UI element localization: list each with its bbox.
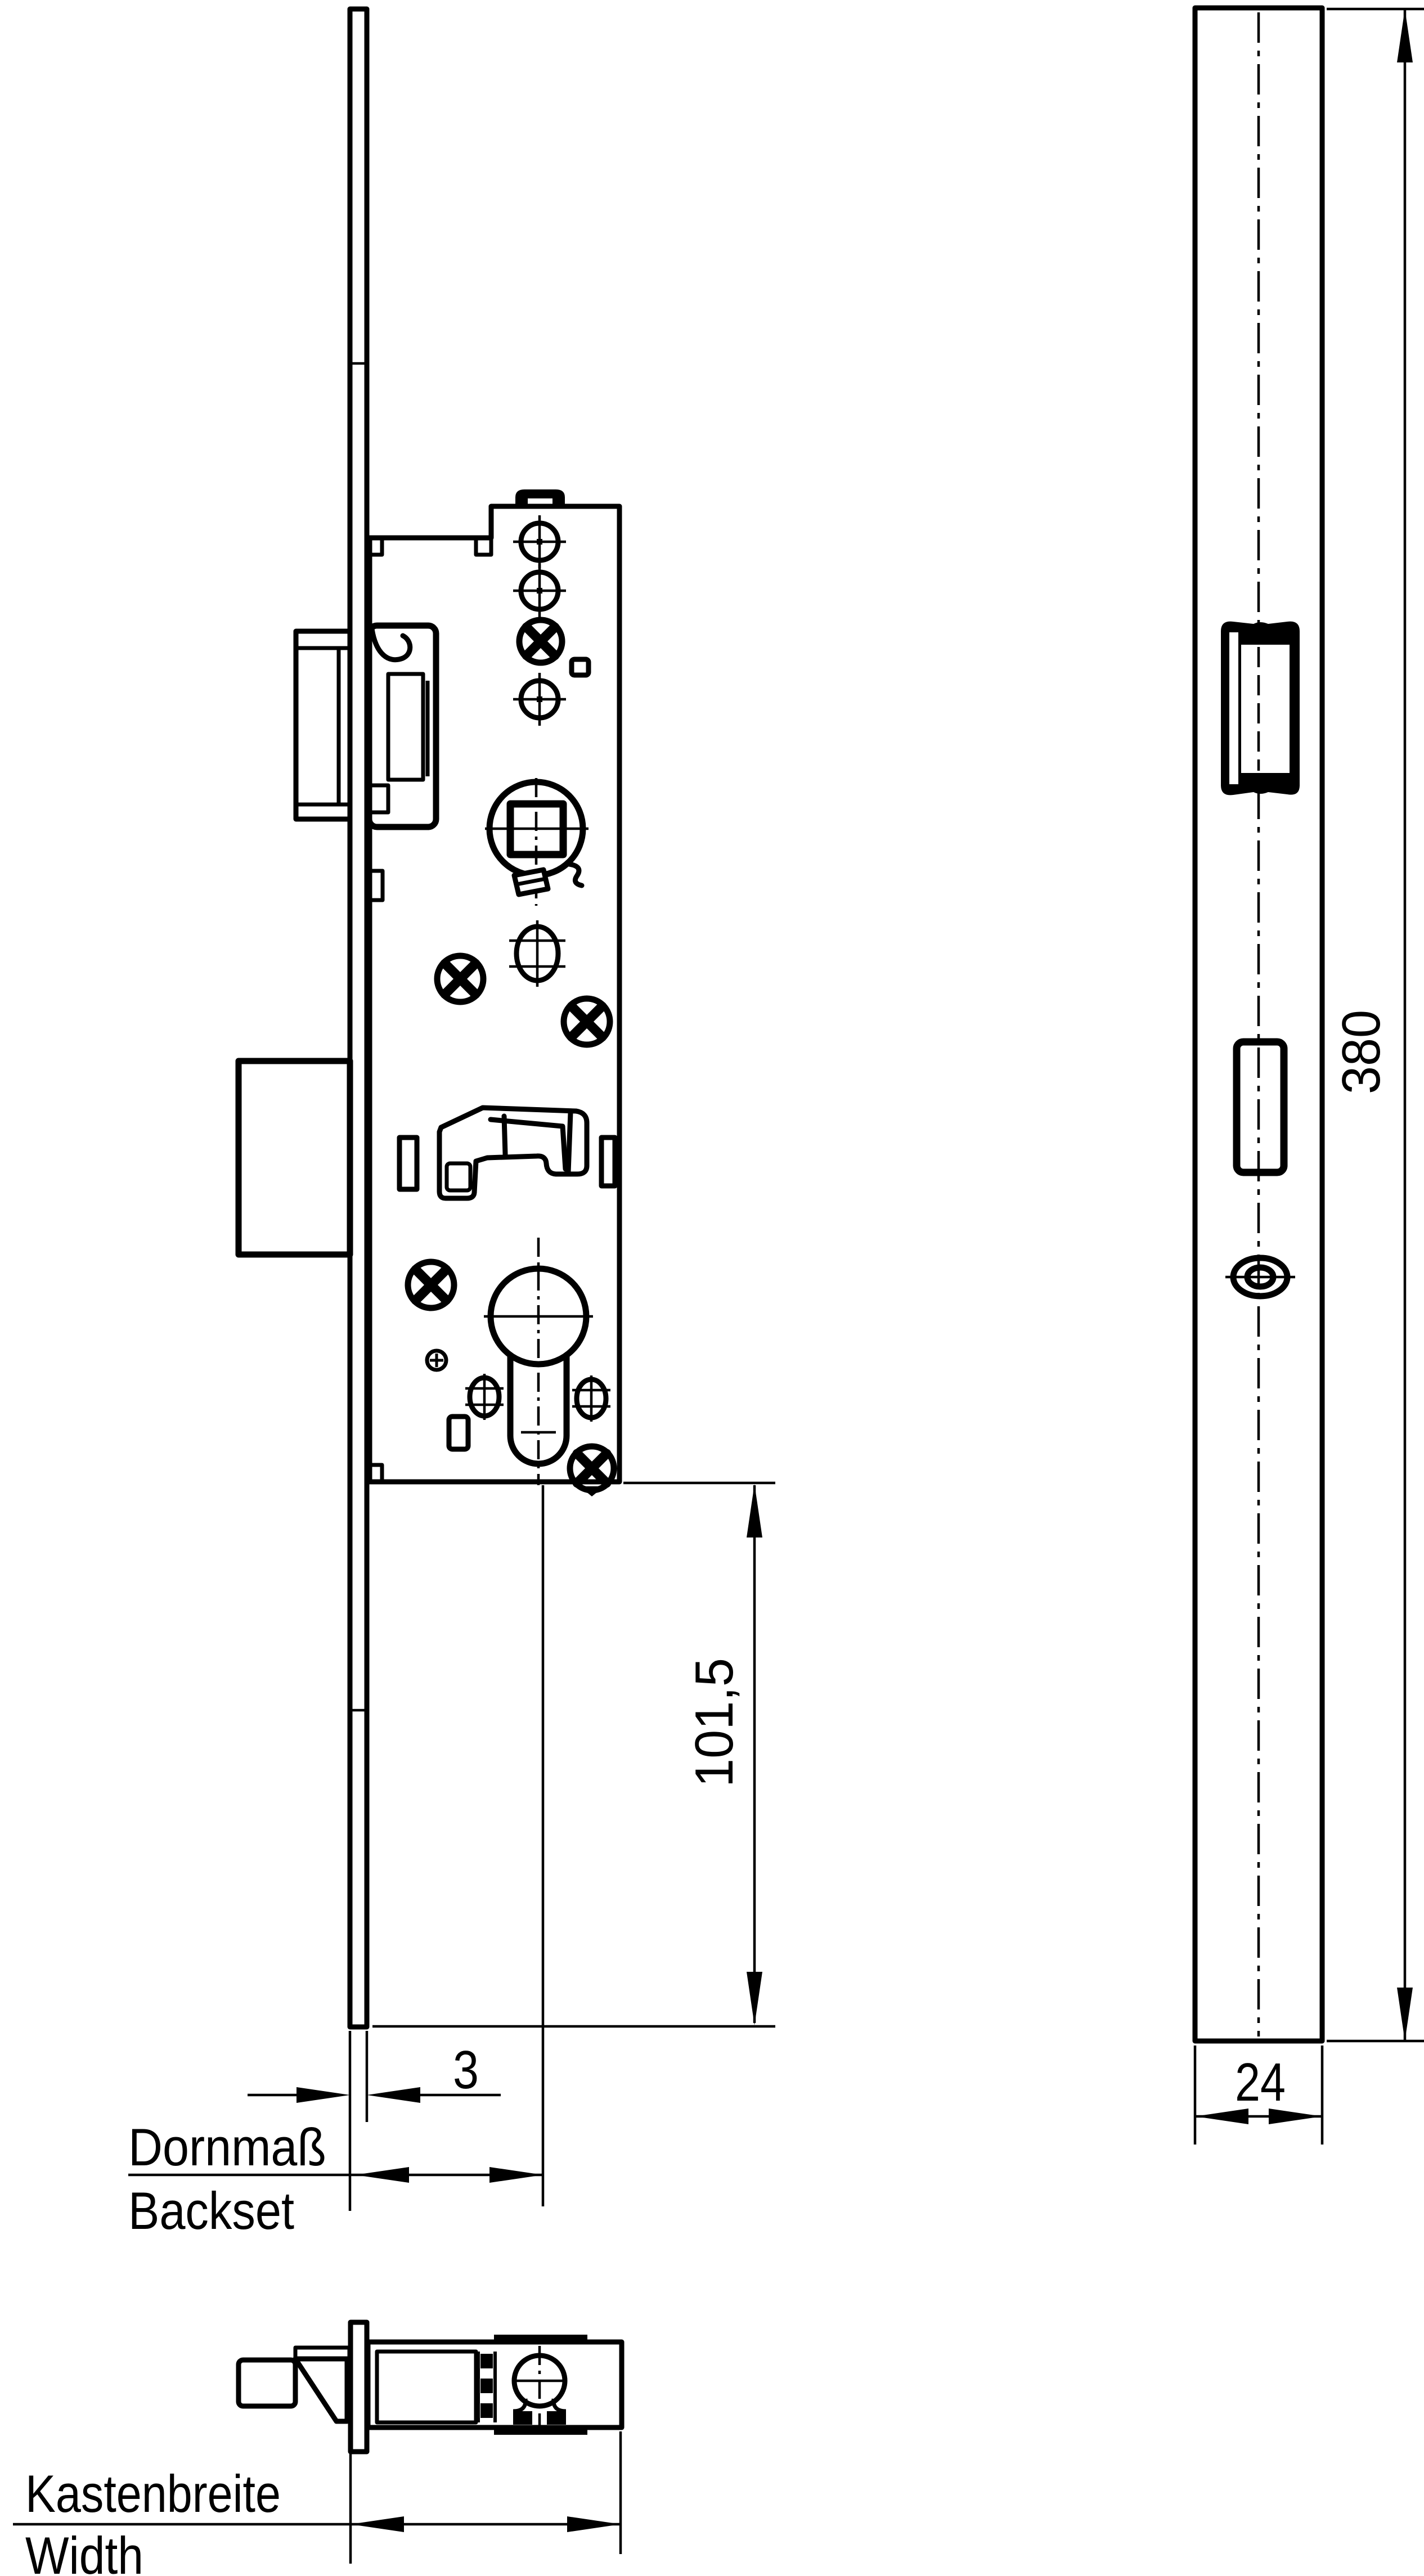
dim-text-3: 3	[453, 2040, 479, 2100]
faceplate-top-view	[351, 2322, 367, 2452]
top-view-lock-case	[239, 2322, 622, 2452]
screw-hole-icon	[513, 515, 566, 568]
screw-hole-icon	[513, 564, 566, 617]
phillips-screw-icon	[408, 1262, 454, 1308]
label-case-width-en: Width	[25, 2526, 143, 2576]
oval-slot	[509, 920, 565, 987]
guide-slot	[601, 1138, 615, 1186]
latch-bevel	[295, 2359, 347, 2421]
technical-drawing-page: 101,5 3 Dornmaß Backset 380 24	[0, 0, 1424, 2576]
case-inner-wall	[377, 2352, 476, 2422]
screw-head-front	[1225, 1258, 1295, 1296]
drawing-canvas: 101,5 3 Dornmaß Backset 380 24	[0, 0, 1424, 2576]
dimension-backset: Dornmaß Backset	[128, 1485, 543, 2240]
section-hatch	[480, 2379, 493, 2393]
euro-cylinder-hole	[484, 1238, 593, 1485]
dim-text-101-5: 101,5	[684, 1658, 744, 1787]
dim-text-24: 24	[1235, 2052, 1286, 2112]
pin-hole-icon	[427, 1351, 446, 1370]
bolt-slot-front	[1237, 1042, 1284, 1172]
small-square-hole	[572, 659, 589, 675]
faceplate-side	[350, 9, 367, 2027]
section-hatch	[480, 2354, 493, 2368]
cylinder-housing-band	[494, 2335, 587, 2343]
side-view-lock-case	[239, 9, 619, 2027]
latch-roller-front	[1221, 622, 1300, 795]
oval-screw-icon	[572, 1375, 610, 1422]
phillips-screw-icon	[437, 956, 483, 1002]
phillips-screw-icon	[519, 620, 562, 663]
label-backset-de: Dornmaß	[128, 2118, 326, 2177]
label-backset-en: Backset	[128, 2181, 294, 2240]
oval-screw-icon	[465, 1374, 504, 1420]
euro-cylinder-top-view	[513, 2346, 566, 2436]
section-hatch	[480, 2403, 493, 2418]
spindle-follower	[485, 778, 589, 906]
dim-text-380: 380	[1331, 1010, 1391, 1094]
locking-pawl	[439, 1108, 587, 1198]
dimension-case-width: Kastenbreite Width	[13, 2431, 621, 2576]
dimension-101-5: 101,5	[372, 1483, 775, 2026]
small-slot	[449, 1417, 468, 1449]
phillips-screw-icon	[564, 999, 610, 1045]
front-view-faceplate	[1195, 8, 1322, 2041]
latch-top-shaft	[239, 2360, 295, 2406]
dimension-380: 380	[1327, 9, 1424, 2041]
dimension-24: 24	[1195, 2045, 1322, 2145]
guide-slot	[399, 1138, 417, 1189]
phillips-screw-icon	[570, 1446, 614, 1496]
label-case-width-de: Kastenbreite	[25, 2464, 281, 2523]
auxiliary-bolt-box	[239, 1061, 350, 1255]
screw-hole-icon	[513, 673, 566, 726]
